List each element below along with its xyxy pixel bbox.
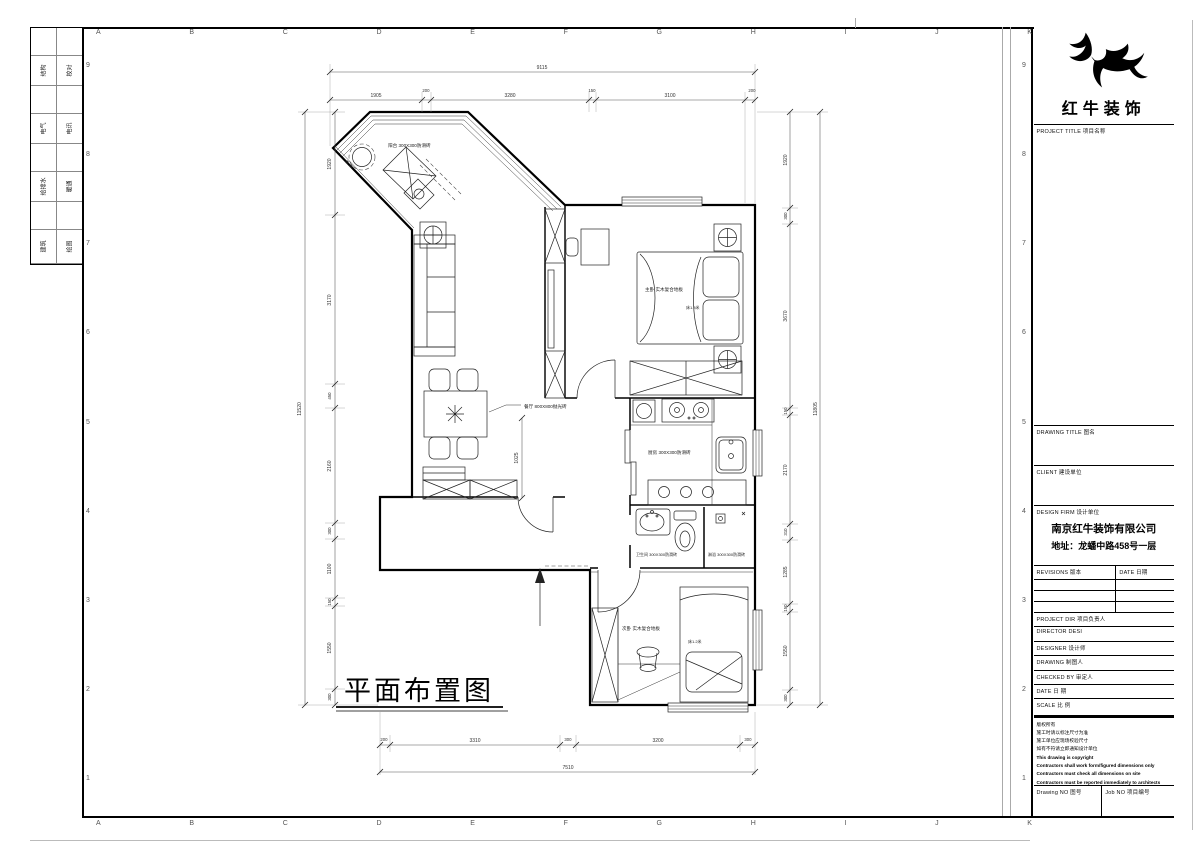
floor-plan-svg: 阳台 300X300防滑砖 主卧 实木复合地板 床1.8米 餐厅 800X800… bbox=[240, 50, 900, 810]
grid-letter: C bbox=[283, 29, 288, 36]
revisions-table: REVISIONS 版本 DATE 日期 bbox=[1034, 565, 1175, 612]
dim-hall: 1025 bbox=[514, 452, 520, 463]
job-no-label: Job NO 项目编号 bbox=[1102, 786, 1149, 796]
kitchen-label: 厨房 300X300防滑砖 bbox=[648, 449, 691, 456]
grid-number: 2 bbox=[86, 686, 90, 693]
grid-number: 6 bbox=[86, 329, 90, 336]
copyright-section: 版权所有施工时请以标注尺寸为准施工单位应现场校验尺寸如有不符请立即通知设计单位 … bbox=[1034, 718, 1175, 785]
sheet-right-edge bbox=[1192, 20, 1193, 830]
svg-text:1285: 1285 bbox=[783, 566, 789, 577]
discipline-label: 暖通 bbox=[65, 180, 74, 192]
copyright-line: Contractors shall work form/figured dime… bbox=[1037, 762, 1175, 770]
dim-right-total: 11805 bbox=[813, 402, 819, 416]
grid-letter: F bbox=[564, 29, 568, 36]
firm-name: 南京红牛装饰有限公司 bbox=[1034, 521, 1175, 536]
logo bbox=[1034, 29, 1175, 95]
copyright-cn: 版权所有施工时请以标注尺寸为准施工单位应现场校验尺寸如有不符请立即通知设计单位 bbox=[1037, 721, 1175, 754]
bull-logo-icon bbox=[1056, 29, 1152, 93]
grid-number: 2 bbox=[1022, 686, 1026, 693]
design-firm-section: DESIGN FIRM 设计单位 南京红牛装饰有限公司 地址：龙蟠中路458号一… bbox=[1034, 505, 1175, 565]
grid-number: 5 bbox=[1022, 419, 1026, 426]
svg-text:1920: 1920 bbox=[327, 158, 333, 169]
copyright-line: 施工单位应现场校验尺寸 bbox=[1037, 737, 1175, 745]
svg-text:300: 300 bbox=[564, 737, 572, 742]
discipline-label: 电讯 bbox=[65, 122, 74, 134]
discipline-label: 电气 bbox=[39, 122, 48, 134]
grid-number: 3 bbox=[86, 597, 90, 604]
grid-number: 1 bbox=[1022, 775, 1026, 782]
grid-letter: J bbox=[935, 820, 939, 827]
grid-letter: D bbox=[376, 820, 381, 827]
discipline-label: 建筑 bbox=[39, 240, 48, 252]
svg-text:1550: 1550 bbox=[783, 645, 789, 656]
svg-text:200: 200 bbox=[380, 737, 388, 742]
discipline-label: 校对 bbox=[65, 64, 74, 76]
svg-text:310: 310 bbox=[783, 528, 788, 536]
grid-number: 4 bbox=[86, 508, 90, 515]
grid-letter: K bbox=[1027, 820, 1032, 827]
copyright-line: Contractors must check all dimensions on… bbox=[1037, 770, 1175, 778]
grid-letter: G bbox=[657, 29, 662, 36]
svg-text:300: 300 bbox=[327, 693, 332, 701]
svg-text:3310: 3310 bbox=[469, 738, 480, 744]
grid-letter: I bbox=[844, 29, 846, 36]
signature-strip: 结构 校对 电气 电讯 给排水 暖通 建筑 绘图 bbox=[30, 27, 84, 265]
svg-text:300: 300 bbox=[327, 527, 332, 535]
drawing-title-label: DRAWING TITLE 图名 bbox=[1034, 426, 1175, 436]
dim-bottom-total: 7510 bbox=[562, 765, 573, 771]
svg-text:150: 150 bbox=[327, 598, 332, 606]
shower-label: 淋浴 300X300防滑砖 bbox=[708, 551, 745, 557]
svg-text:300: 300 bbox=[783, 212, 788, 220]
scale-row: SCALE 比 例 bbox=[1034, 698, 1175, 715]
second-label: 次卧 实木复合地板 bbox=[622, 625, 660, 632]
plan-title-text: 平面布置图 bbox=[344, 676, 494, 707]
master-bed-label: 床1.8米 bbox=[686, 304, 700, 310]
grid-letters-bottom: ABCDEFGHIJK bbox=[96, 820, 1032, 827]
svg-text:300: 300 bbox=[744, 737, 752, 742]
client-label: CLIENT 建设单位 bbox=[1034, 466, 1175, 476]
master-bedroom bbox=[566, 224, 743, 398]
grid-letter: I bbox=[844, 820, 846, 827]
frame-bottom bbox=[82, 816, 1174, 818]
svg-text:150: 150 bbox=[588, 88, 596, 93]
svg-text:150: 150 bbox=[783, 604, 788, 612]
svg-text:3200: 3200 bbox=[652, 738, 663, 744]
bathroom-fixtures bbox=[636, 509, 745, 551]
revisions-label: REVISIONS 版本 bbox=[1034, 566, 1082, 576]
drawing-no-label: Drawing NO 图号 bbox=[1034, 786, 1082, 796]
svg-text:3280: 3280 bbox=[504, 93, 515, 99]
copyright-line: 施工时请以标注尺寸为准 bbox=[1037, 729, 1175, 737]
grid-letter: H bbox=[751, 820, 756, 827]
grid-letter: B bbox=[189, 29, 194, 36]
grid-number: 7 bbox=[86, 240, 90, 247]
master-label: 主卧 实木复合地板 bbox=[645, 286, 683, 293]
grid-letters-top: ABCDEFGHIJK bbox=[96, 29, 1032, 36]
svg-text:200: 200 bbox=[422, 88, 430, 93]
grid-numbers-right: 987654321 bbox=[1022, 62, 1026, 782]
grid-letter: G bbox=[657, 820, 662, 827]
grid-letter: K bbox=[1027, 29, 1032, 36]
date-col-label: DATE 日期 bbox=[1116, 566, 1147, 576]
brand-name: 红牛装饰 bbox=[1034, 95, 1175, 119]
balcony-label: 阳台 300X300防滑砖 bbox=[388, 142, 431, 149]
fold-line bbox=[1010, 27, 1011, 816]
grid-number: 4 bbox=[1022, 508, 1026, 515]
designer-row: DESIGNER 设计师 bbox=[1034, 641, 1175, 655]
copyright-line: This drawing is copyright bbox=[1037, 754, 1175, 762]
svg-text:1100: 1100 bbox=[327, 563, 333, 574]
date-row: DATE 日 期 bbox=[1034, 684, 1175, 698]
svg-text:200: 200 bbox=[748, 88, 756, 93]
copyright-line: 版权所有 bbox=[1037, 721, 1175, 729]
svg-text:300: 300 bbox=[783, 694, 788, 702]
grid-number: 9 bbox=[86, 62, 90, 69]
project-dir-row: PROJECT DIR 项目负责人 bbox=[1034, 612, 1175, 626]
bath-label: 卫生间 300X300防滑砖 bbox=[636, 551, 677, 557]
living-dining bbox=[414, 222, 521, 499]
grid-number: 6 bbox=[1022, 329, 1026, 336]
fold-tick bbox=[855, 18, 856, 28]
closet-strip bbox=[545, 209, 565, 398]
copyright-en: This drawing is copyrightContractors sha… bbox=[1037, 754, 1175, 787]
project-title-label: PROJECT TITLE 项目名称 bbox=[1034, 125, 1175, 135]
discipline-label: 给排水 bbox=[39, 177, 48, 195]
dim-top-total: 9115 bbox=[537, 65, 548, 71]
grid-letter: B bbox=[189, 820, 194, 827]
frame-left bbox=[82, 27, 84, 818]
grid-letter: J bbox=[935, 29, 939, 36]
discipline-label: 结构 bbox=[39, 64, 48, 76]
second-bed-label: 床1.2米 bbox=[688, 638, 702, 644]
grid-letter: E bbox=[470, 29, 475, 36]
svg-text:1905: 1905 bbox=[370, 93, 381, 99]
grid-letter: H bbox=[751, 29, 756, 36]
grid-number: 3 bbox=[1022, 597, 1026, 604]
grid-number: 5 bbox=[86, 419, 90, 426]
svg-text:3170: 3170 bbox=[327, 294, 333, 305]
windows bbox=[622, 197, 762, 712]
hall-entry bbox=[518, 497, 590, 626]
dim-left-total: 11520 bbox=[297, 402, 303, 416]
grid-letter: D bbox=[376, 29, 381, 36]
copyright-line: 如有不符请立即通知设计单位 bbox=[1037, 745, 1175, 753]
firm-address: 地址：龙蟠中路458号一层 bbox=[1034, 539, 1175, 552]
svg-text:2170: 2170 bbox=[783, 464, 789, 475]
grid-letter: E bbox=[470, 820, 475, 827]
svg-text:3100: 3100 bbox=[664, 93, 675, 99]
grid-number: 1 bbox=[86, 775, 90, 782]
svg-text:150: 150 bbox=[783, 407, 788, 415]
plan-title: 平面布置图 bbox=[336, 676, 508, 711]
drawing-title-section: DRAWING TITLE 图名 bbox=[1034, 425, 1175, 465]
grid-number: 7 bbox=[1022, 240, 1026, 247]
grid-letter: A bbox=[96, 29, 101, 36]
fold-line bbox=[1002, 27, 1003, 816]
drawing-no-row: Drawing NO 图号 Job NO 项目编号 bbox=[1034, 785, 1175, 816]
checked-row: CHECKED BY 审定人 bbox=[1034, 670, 1175, 684]
balcony-fixtures bbox=[346, 144, 461, 209]
grid-letter: A bbox=[96, 820, 101, 827]
director-row: DIRECTOR DESI bbox=[1034, 626, 1175, 640]
grid-number: 8 bbox=[1022, 151, 1026, 158]
design-firm-label: DESIGN FIRM 设计单位 bbox=[1034, 506, 1175, 516]
svg-text:3670: 3670 bbox=[783, 310, 789, 321]
sheet-bottom-edge bbox=[30, 840, 1030, 841]
drawing-sheet: 结构 校对 电气 电讯 给排水 暖通 建筑 绘图 ABCDEFGHIJK ABC… bbox=[0, 0, 1200, 844]
discipline-label: 绘图 bbox=[65, 240, 74, 252]
svg-text:2160: 2160 bbox=[327, 460, 333, 471]
svg-text:450: 450 bbox=[327, 392, 332, 400]
second-bedroom bbox=[592, 570, 748, 702]
grid-number: 8 bbox=[86, 151, 90, 158]
svg-text:1920: 1920 bbox=[783, 154, 789, 165]
grid-number: 9 bbox=[1022, 62, 1026, 69]
project-title-section: PROJECT TITLE 项目名称 bbox=[1034, 124, 1175, 425]
grid-numbers-left: 987654321 bbox=[86, 62, 90, 782]
title-block: 红牛装饰 PROJECT TITLE 项目名称 DRAWING TITLE 图名… bbox=[1034, 27, 1175, 816]
grid-letter: F bbox=[564, 820, 568, 827]
dining-label: 餐厅 800X800抛光砖 bbox=[524, 403, 567, 410]
drawing-row: DRAWING 制图人 bbox=[1034, 655, 1175, 669]
svg-text:1550: 1550 bbox=[327, 642, 333, 653]
client-section: CLIENT 建设单位 bbox=[1034, 465, 1175, 505]
grid-letter: C bbox=[283, 820, 288, 827]
